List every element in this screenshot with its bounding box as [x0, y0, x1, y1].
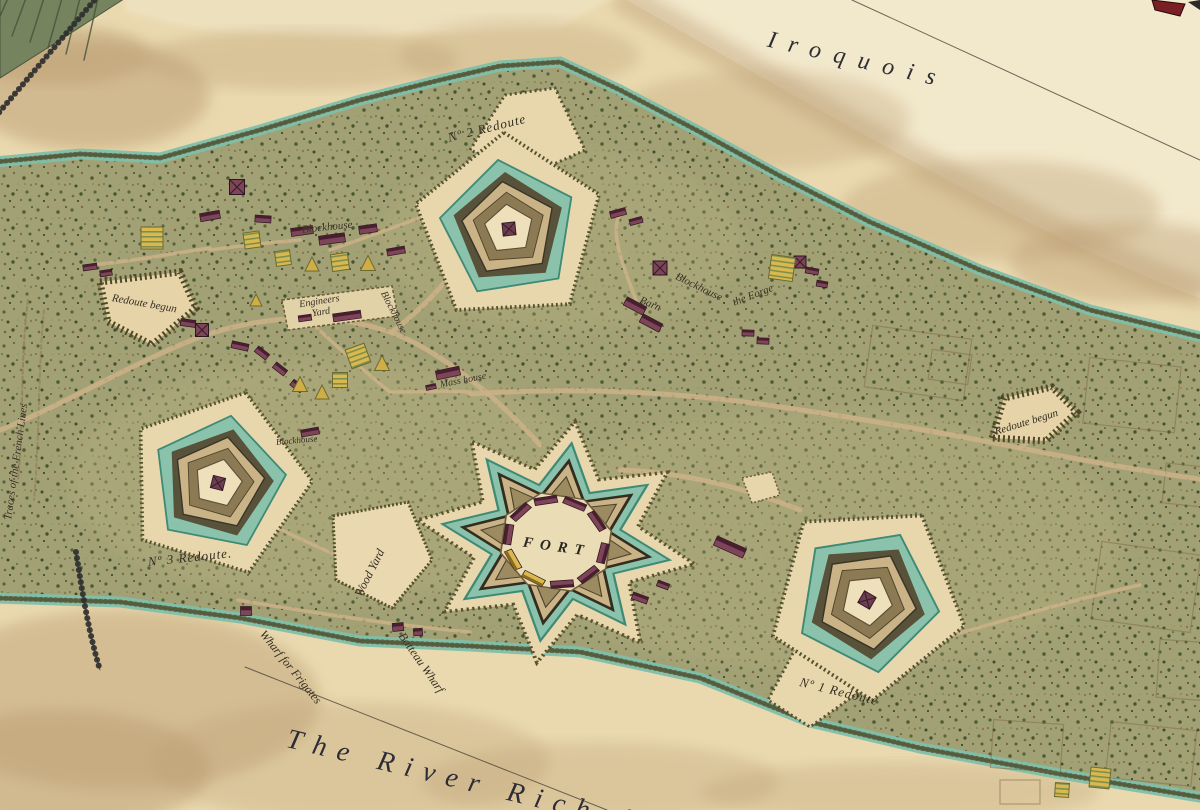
map-canvas: Iroquois The River Richelieu FORT Nº 2 R… [0, 0, 1200, 810]
map-artwork [0, 0, 1200, 810]
